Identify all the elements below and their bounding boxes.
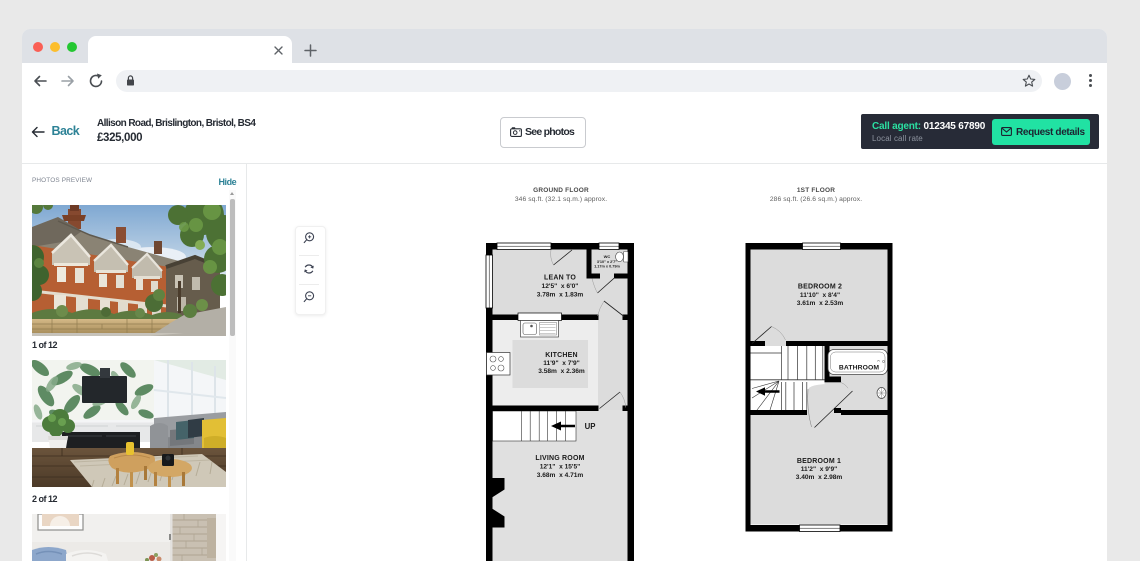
- svg-text:BEDROOM 1: BEDROOM 1: [797, 458, 841, 465]
- svg-text:KITCHEN: KITCHEN: [545, 352, 578, 359]
- svg-text:3.40m x 2.98m: 3.40m x 2.98m: [796, 474, 843, 481]
- svg-text:12'1" x 15'5": 12'1" x 15'5": [540, 464, 581, 471]
- svg-text:11'10" x 8'4": 11'10" x 8'4": [800, 292, 840, 299]
- svg-text:11'9" x 7'9": 11'9" x 7'9": [543, 360, 580, 367]
- svg-text:3'10" x 2'7": 3'10" x 2'7": [597, 260, 617, 264]
- svg-text:12'5" x 6'0": 12'5" x 6'0": [542, 283, 579, 290]
- svg-text:BATHROOM: BATHROOM: [839, 365, 880, 372]
- svg-text:3.61m x 2.53m: 3.61m x 2.53m: [797, 300, 844, 307]
- svg-text:1.17m x 0.79m: 1.17m x 0.79m: [594, 265, 620, 269]
- svg-text:WC: WC: [604, 254, 611, 259]
- svg-text:3.58m x 2.36m: 3.58m x 2.36m: [538, 368, 585, 375]
- svg-text:11'2" x 9'9": 11'2" x 9'9": [801, 466, 838, 473]
- svg-text:LIVING ROOM: LIVING ROOM: [535, 455, 584, 462]
- svg-text:UP: UP: [585, 422, 596, 431]
- svg-text:3.68m x 4.71m: 3.68m x 4.71m: [537, 472, 584, 479]
- svg-text:LEAN TO: LEAN TO: [544, 275, 576, 282]
- svg-text:3.78m x 1.83m: 3.78m x 1.83m: [537, 292, 584, 299]
- svg-text:BEDROOM 2: BEDROOM 2: [798, 284, 842, 291]
